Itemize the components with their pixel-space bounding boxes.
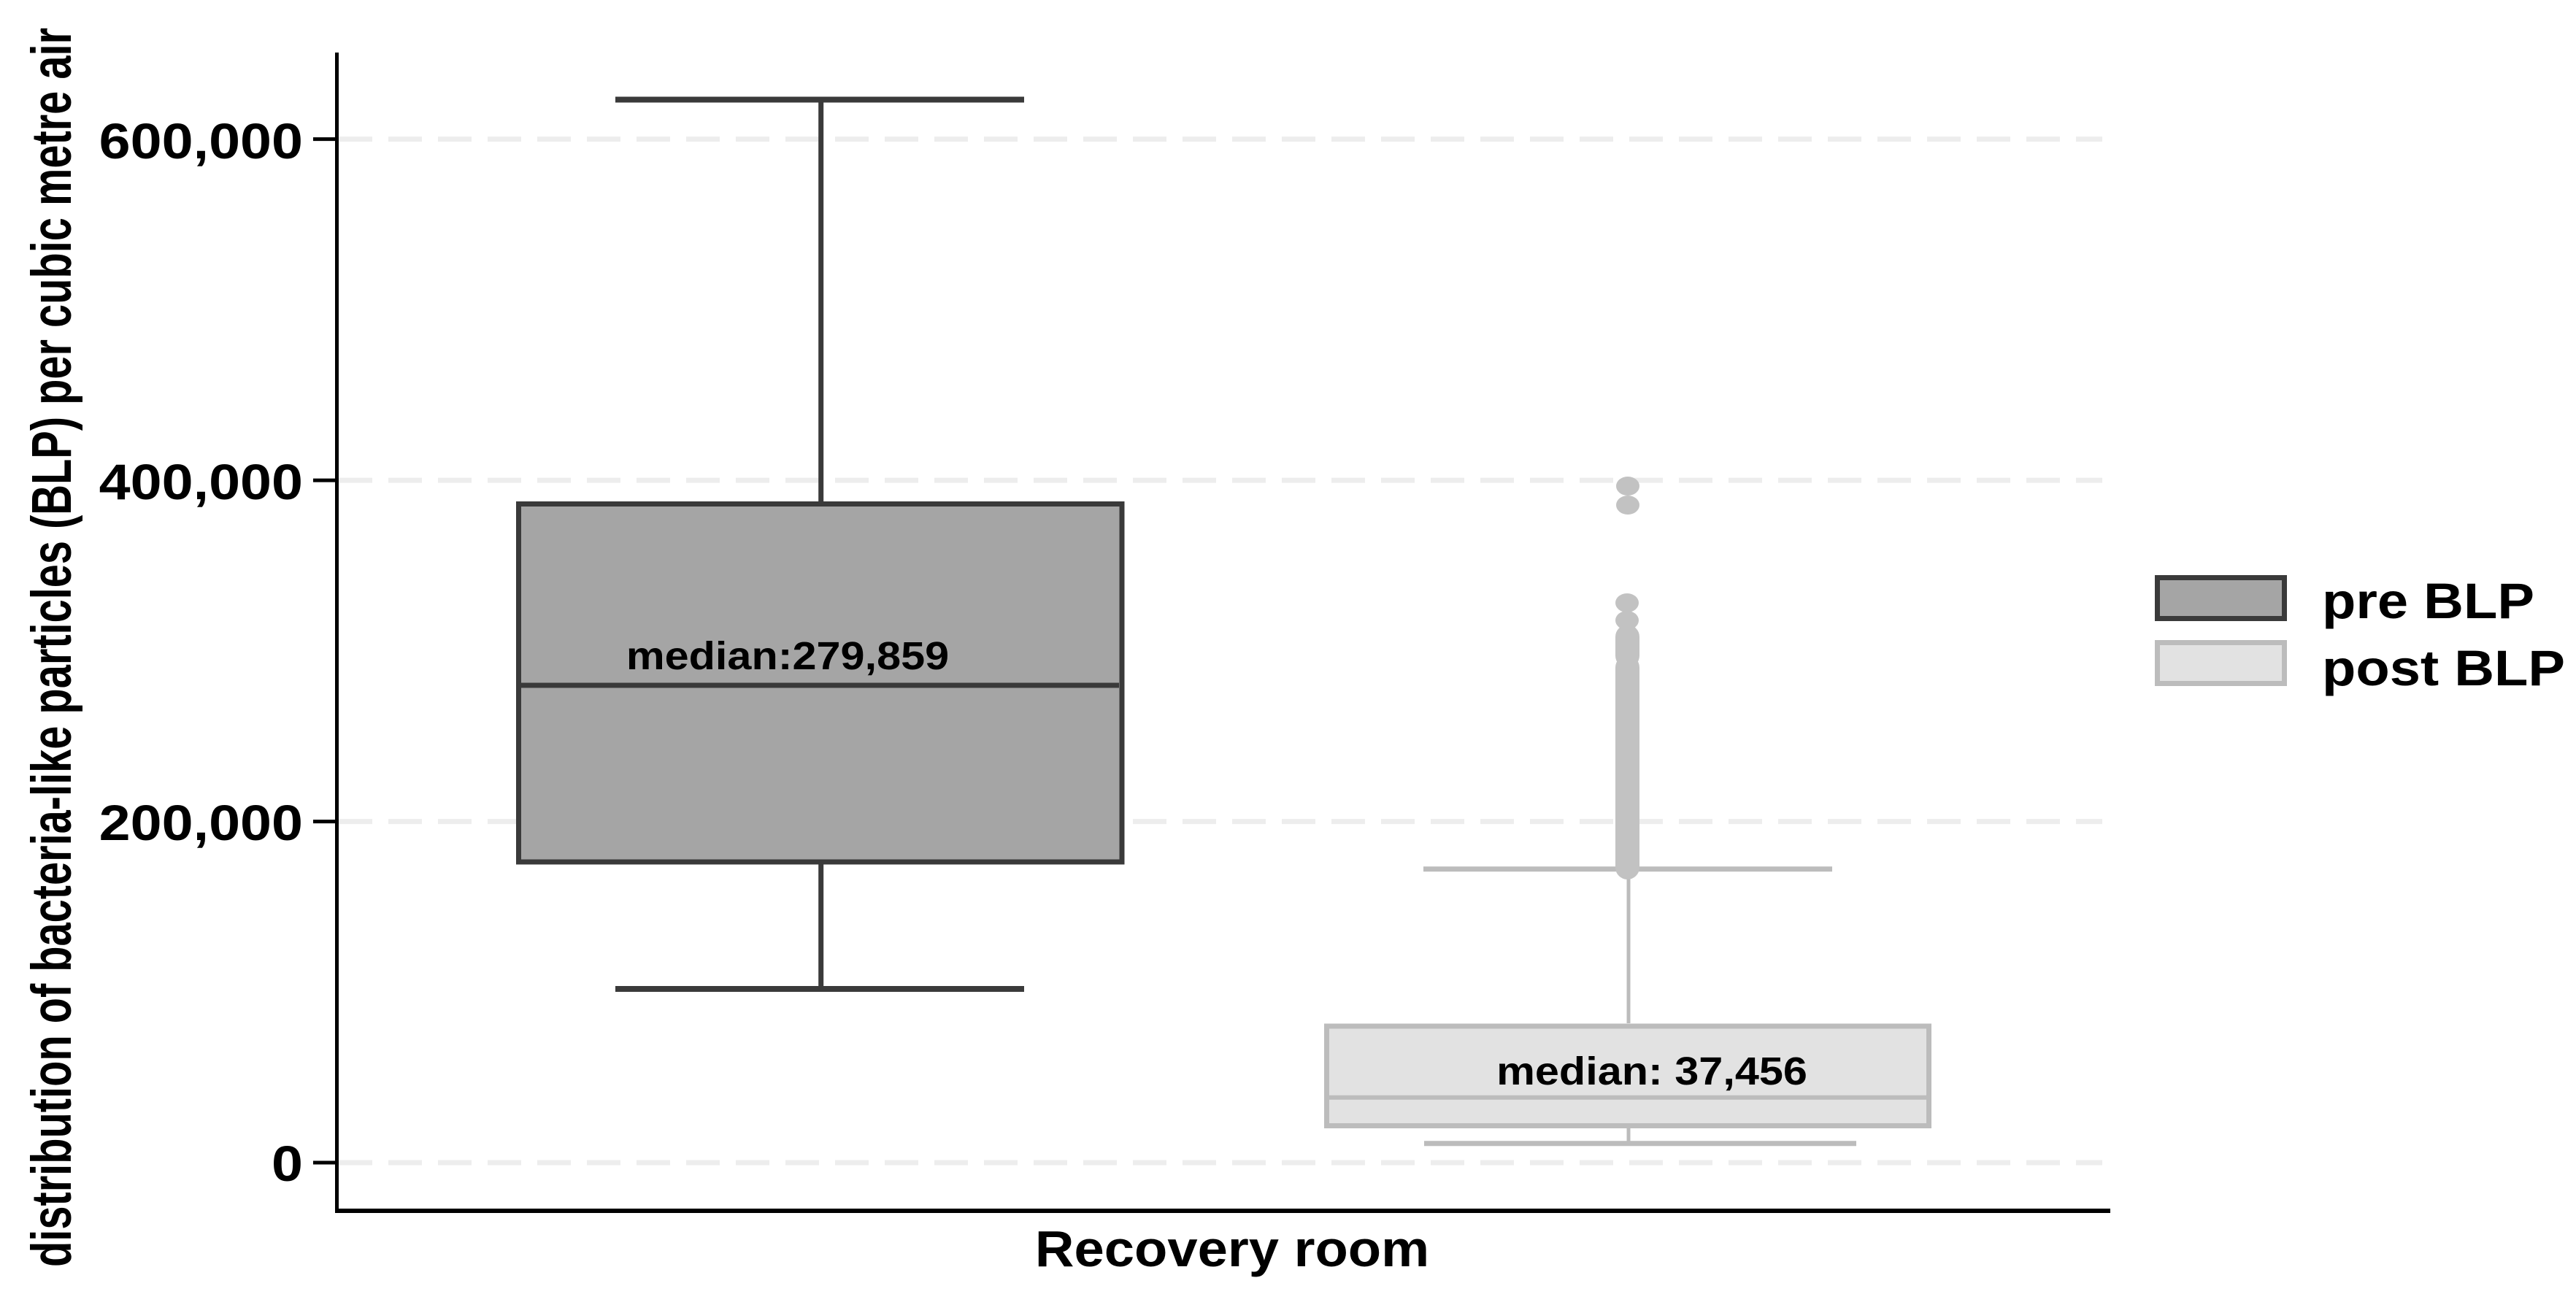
svg-text:200,000: 200,000 — [99, 795, 303, 851]
svg-text:600,000: 600,000 — [99, 113, 303, 169]
svg-text:post BLP: post BLP — [2322, 640, 2565, 696]
svg-text:distribution of bacteria-like: distribution of bacteria-like particles … — [20, 28, 83, 1267]
svg-text:400,000: 400,000 — [99, 454, 303, 510]
svg-text:0: 0 — [272, 1136, 303, 1192]
svg-text:median: 37,456: median: 37,456 — [1496, 1050, 1807, 1093]
svg-text:median:279,859: median:279,859 — [626, 634, 949, 678]
svg-text:Recovery room: Recovery room — [1035, 1221, 1429, 1278]
svg-text:pre BLP: pre BLP — [2322, 573, 2534, 629]
